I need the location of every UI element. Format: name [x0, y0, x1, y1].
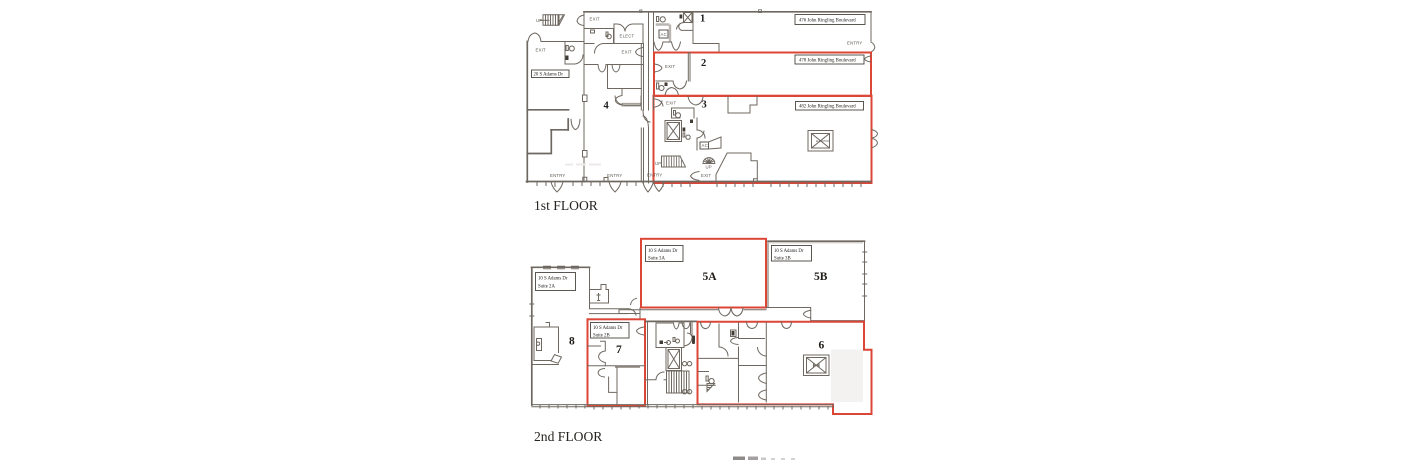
svg-text:1st FLOOR: 1st FLOOR: [534, 198, 599, 213]
svg-text:8: 8: [569, 336, 575, 348]
svg-text:4: 4: [604, 101, 610, 112]
svg-text:Suite 2B: Suite 2B: [593, 334, 610, 339]
svg-text:EXIT: EXIT: [536, 48, 547, 53]
svg-text:20 S Adams Dr: 20 S Adams Dr: [534, 73, 564, 78]
svg-text:7: 7: [616, 344, 622, 356]
svg-text:6: 6: [819, 340, 825, 352]
svg-text:ENTRY: ENTRY: [550, 173, 566, 178]
svg-text:ENTRY: ENTRY: [647, 173, 663, 178]
svg-text:Suite 3A: Suite 3A: [648, 257, 665, 262]
svg-text:Suite 3B: Suite 3B: [774, 257, 791, 262]
svg-text:482 John Ringling Boulevard: 482 John Ringling Boulevard: [799, 105, 856, 110]
svg-text:10 S Adams Dr: 10 S Adams Dr: [774, 249, 804, 254]
svg-text:478 John Ringling Boulevard: 478 John Ringling Boulevard: [799, 59, 856, 64]
svg-text:UP: UP: [706, 165, 712, 170]
svg-text:ENTRY: ENTRY: [847, 41, 863, 46]
svg-text:EXIT: EXIT: [590, 17, 601, 22]
svg-text:AC: AC: [661, 32, 667, 37]
svg-text:5A: 5A: [703, 271, 718, 283]
svg-text:3: 3: [702, 100, 707, 111]
svg-text:Suite 2A: Suite 2A: [538, 285, 555, 290]
svg-text:10 S Adams Dr: 10 S Adams Dr: [593, 326, 623, 331]
svg-text:10 S Adams Dr: 10 S Adams Dr: [538, 277, 568, 282]
svg-text:EXIT: EXIT: [701, 173, 712, 178]
svg-text:AC: AC: [702, 143, 708, 148]
svg-text:2: 2: [701, 58, 706, 69]
svg-text:2nd FLOOR: 2nd FLOOR: [534, 429, 603, 444]
svg-text:EXIT: EXIT: [665, 64, 676, 69]
svg-text:476 John Ringling Boulevard: 476 John Ringling Boulevard: [799, 19, 856, 24]
svg-text:EXIT: EXIT: [666, 101, 677, 106]
svg-text:UP: UP: [536, 18, 542, 23]
svg-text:ELEVATOR: ELEVATOR: [816, 140, 829, 143]
svg-text:UP: UP: [655, 161, 661, 166]
svg-text:ENTRY: ENTRY: [607, 173, 623, 178]
svg-text:1: 1: [700, 14, 705, 25]
svg-text:5B: 5B: [814, 271, 828, 283]
svg-text:EXIT: EXIT: [622, 50, 633, 55]
svg-text:10 S Adams Dr: 10 S Adams Dr: [648, 249, 678, 254]
svg-text:ELECT: ELECT: [620, 34, 635, 39]
